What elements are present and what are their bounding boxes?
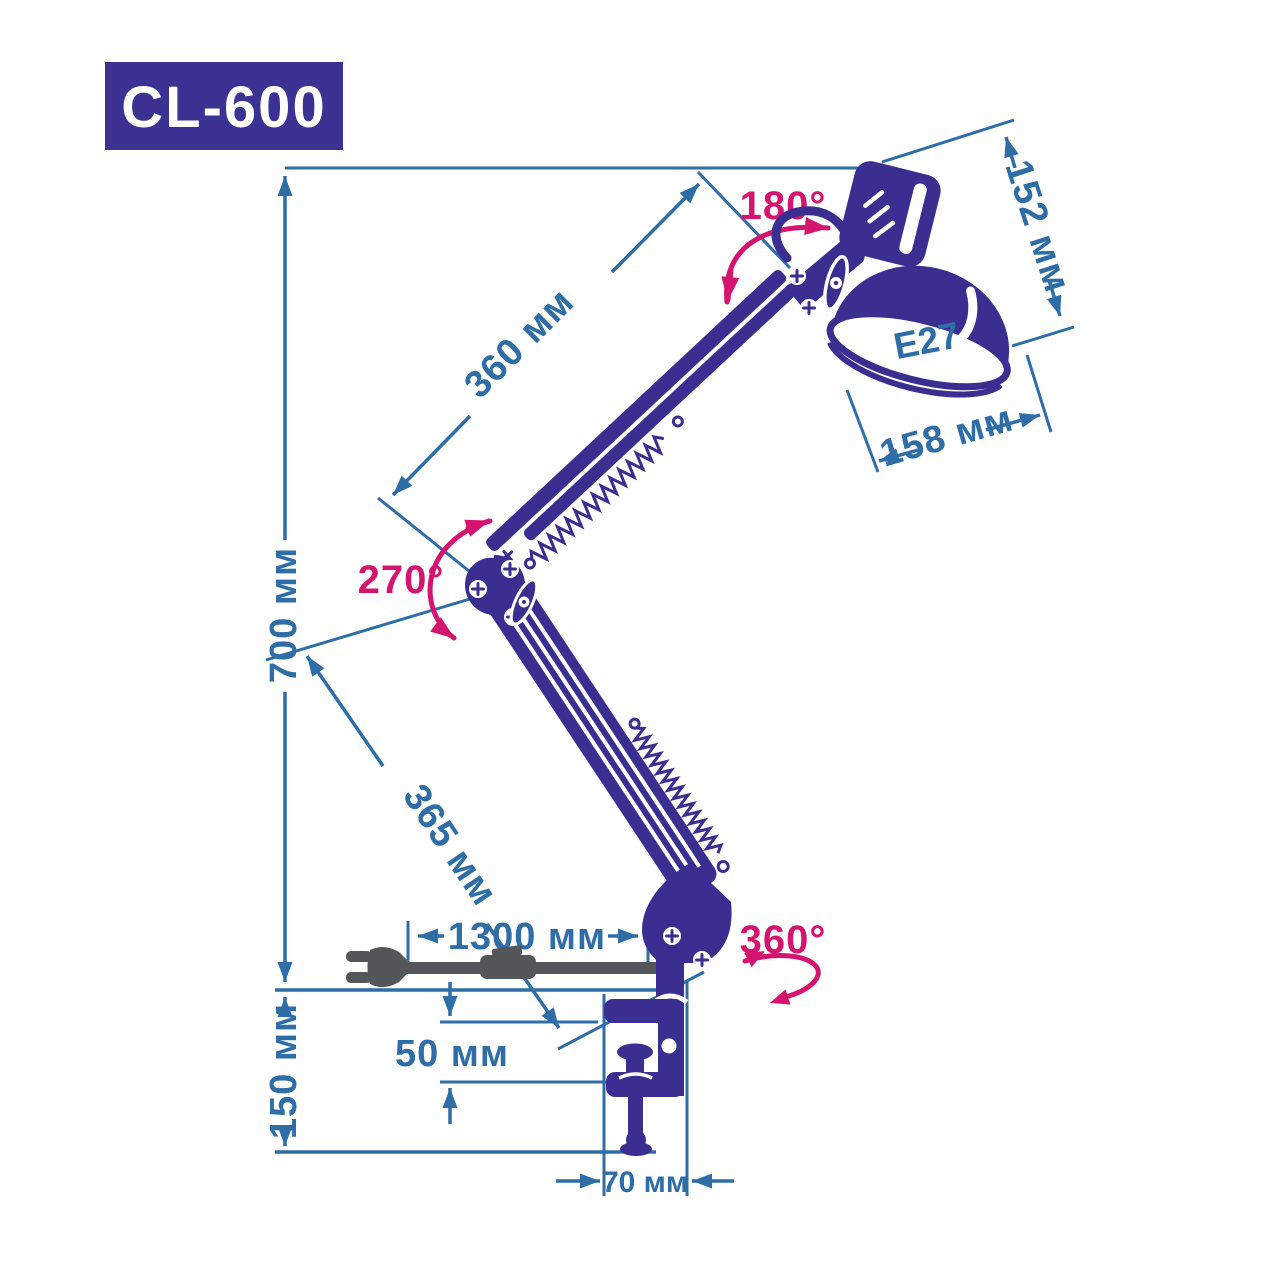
spring-anchor: [716, 860, 730, 874]
overall-height-label: 700 мм: [263, 547, 305, 683]
rotation-arc-arrow: [728, 270, 731, 300]
power-plug: [346, 947, 407, 987]
extension-line: [1012, 327, 1074, 346]
lamp-diagram-svg: CL-600 700 мм 360 мм 152 мм 158 мм: [0, 0, 1280, 1280]
clamp-width-label: 70 мм: [602, 1166, 688, 1199]
screw-icon: [788, 267, 806, 285]
screw-icon: [501, 560, 519, 578]
screw-icon: [469, 580, 487, 598]
elbow-rotation-label: 270°: [358, 558, 445, 602]
clamp-pad-stem: [626, 1058, 644, 1072]
plug-body: [368, 947, 408, 987]
clamp-pad-knob: [617, 1044, 653, 1061]
cord-length-label: 1300 мм: [448, 916, 606, 958]
screw-icon: [663, 927, 681, 945]
rotation-arc-arrow: [468, 521, 489, 528]
dimension-upper-arm: 360 мм: [378, 172, 790, 583]
extension-line: [847, 390, 878, 472]
angle-base-rotation: 360°: [740, 918, 827, 1010]
rotation-arrowhead: [767, 989, 790, 1010]
cord-switch: [480, 955, 536, 979]
shade-diameter-label: 158 мм: [875, 398, 1017, 476]
dimension-mount-height: 150 мм: [263, 997, 305, 1146]
shade-height-label: 152 мм: [996, 155, 1078, 298]
dimension-clamp-opening: 50 мм: [395, 982, 606, 1124]
extension-line: [1027, 355, 1051, 432]
product-dimension-diagram: CL-600 700 мм 360 мм 152 мм 158 мм: [0, 0, 1280, 1280]
upper-arm-length-label: 360 мм: [457, 281, 583, 407]
mount-height-label: 150 мм: [263, 1003, 305, 1139]
base-rotation-label: 360°: [740, 918, 827, 962]
arm-groove: [499, 584, 692, 873]
arm-groove: [491, 590, 684, 879]
spring-anchor: [671, 415, 684, 428]
bracket-body: [642, 863, 732, 963]
power-cord-assembly: [346, 945, 660, 987]
arm-groove: [508, 579, 701, 868]
clamp-opening-label: 50 мм: [395, 1033, 509, 1075]
lower-arm-length-label: 365 мм: [394, 777, 505, 913]
spring-anchor: [524, 557, 537, 570]
base-bracket: [642, 863, 732, 969]
dimension-line: [307, 656, 383, 766]
table-clamp: [604, 999, 684, 1156]
model-badge: CL-600: [105, 62, 343, 150]
screw-icon: [800, 299, 818, 317]
extension-line: [882, 120, 1014, 162]
clamp-screw-foot: [620, 1142, 652, 1156]
model-badge-label: CL-600: [121, 75, 326, 140]
clamp-hole: [662, 1039, 677, 1054]
screw-icon: [693, 951, 711, 969]
dimension-line: [612, 184, 699, 272]
dimension-line: [393, 416, 470, 495]
